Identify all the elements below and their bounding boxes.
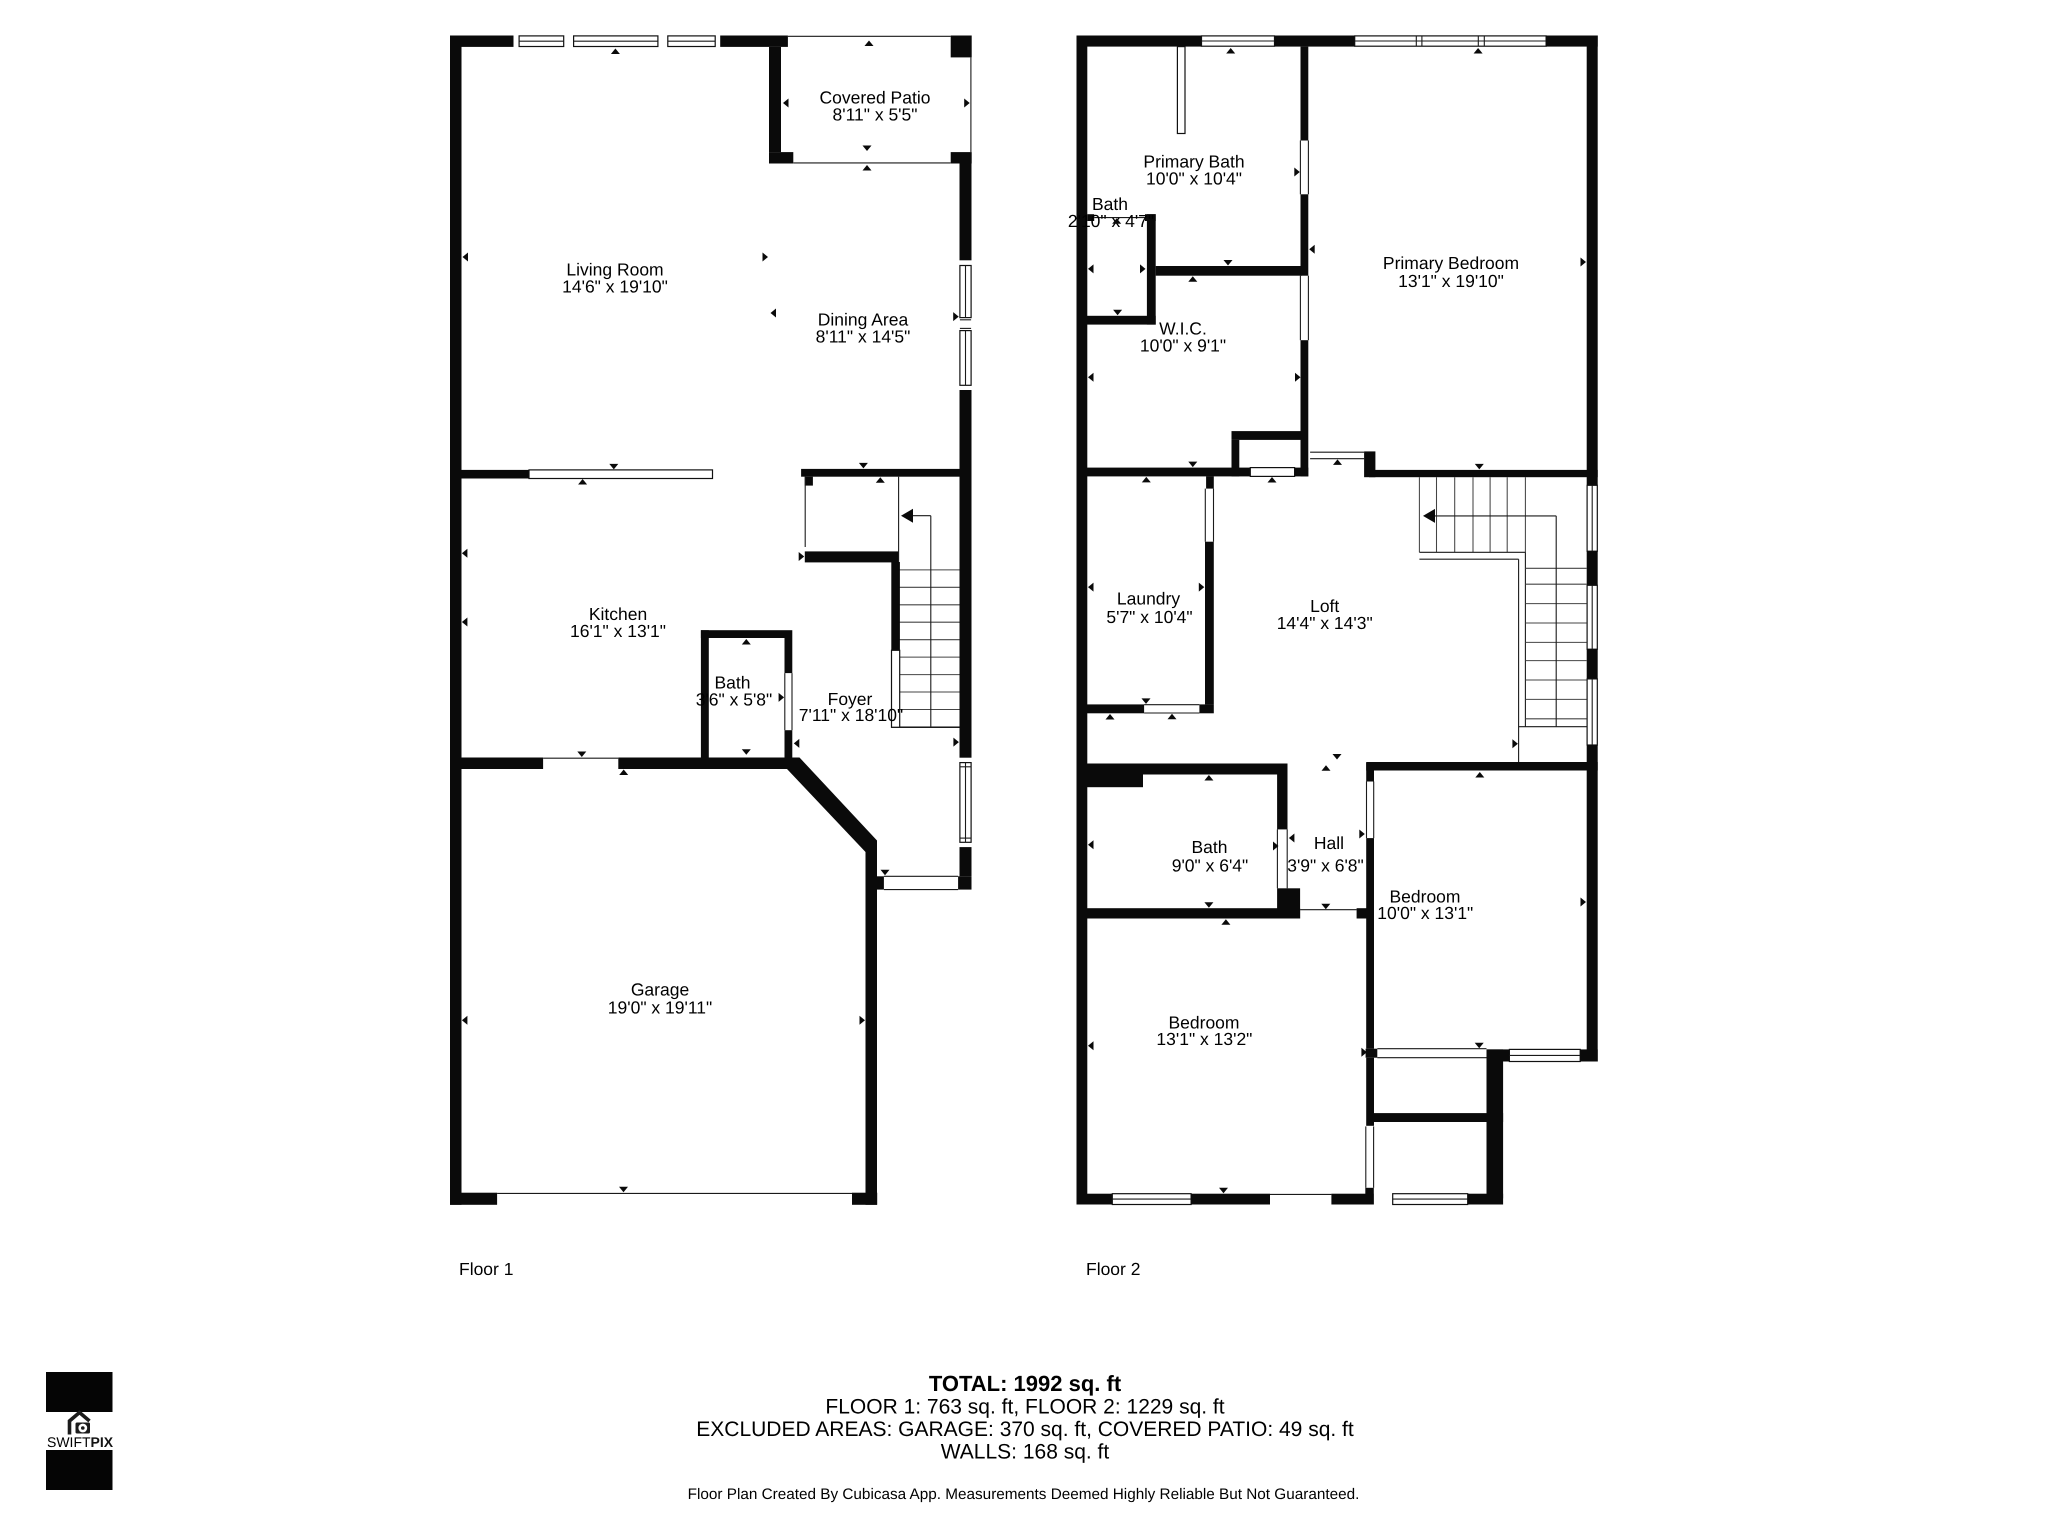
- svg-text:8'11" x 14'5": 8'11" x 14'5": [816, 327, 911, 347]
- svg-text:Primary Bedroom: Primary Bedroom: [1383, 253, 1519, 273]
- svg-text:5'7" x 10'4": 5'7" x 10'4": [1106, 607, 1192, 627]
- svg-text:10'0" x 13'1": 10'0" x 13'1": [1377, 903, 1473, 923]
- svg-text:EXCLUDED AREAS: GARAGE: 370 sq: EXCLUDED AREAS: GARAGE: 370 sq. ft, COVE…: [696, 1418, 1354, 1441]
- svg-text:3'9" x 6'8": 3'9" x 6'8": [1287, 856, 1364, 876]
- svg-text:Floor 2: Floor 2: [1086, 1259, 1140, 1279]
- svg-text:7'11" x 18'10": 7'11" x 18'10": [799, 705, 903, 725]
- svg-text:WALLS: 168 sq. ft: WALLS: 168 sq. ft: [941, 1441, 1110, 1464]
- svg-text:Bath: Bath: [1192, 837, 1228, 857]
- svg-text:13'1" x 19'10": 13'1" x 19'10": [1398, 271, 1504, 291]
- svg-text:19'0" x 19'11": 19'0" x 19'11": [608, 998, 712, 1018]
- svg-text:10'0" x 9'1": 10'0" x 9'1": [1140, 336, 1226, 356]
- svg-text:16'1" x 13'1": 16'1" x 13'1": [570, 621, 666, 641]
- svg-text:FLOOR 1: 763 sq. ft, FLOOR 2:: FLOOR 1: 763 sq. ft, FLOOR 2: 1229 sq. f…: [825, 1396, 1224, 1419]
- svg-text:TOTAL: 1992 sq. ft: TOTAL: 1992 sq. ft: [929, 1371, 1122, 1396]
- svg-text:14'4" x 14'3": 14'4" x 14'3": [1277, 613, 1373, 633]
- svg-text:Floor Plan Created By Cubicasa: Floor Plan Created By Cubicasa App. Meas…: [688, 1486, 1360, 1503]
- svg-text:SWIFTPIX: SWIFTPIX: [47, 1434, 114, 1450]
- svg-text:2'10" x 4'7": 2'10" x 4'7": [1068, 211, 1154, 231]
- svg-text:Laundry: Laundry: [1117, 589, 1180, 609]
- svg-text:8'11" x 5'5": 8'11" x 5'5": [833, 105, 918, 125]
- svg-text:13'1" x 13'2": 13'1" x 13'2": [1156, 1029, 1252, 1049]
- svg-text:Floor 1: Floor 1: [459, 1259, 513, 1279]
- svg-text:Garage: Garage: [631, 980, 689, 1000]
- svg-text:Hall: Hall: [1314, 833, 1344, 853]
- svg-text:3'6" x 5'8": 3'6" x 5'8": [696, 690, 773, 710]
- svg-text:14'6" x 19'10": 14'6" x 19'10": [562, 277, 668, 297]
- svg-text:9'0" x 6'4": 9'0" x 6'4": [1172, 856, 1249, 876]
- svg-text:10'0" x 10'4": 10'0" x 10'4": [1146, 169, 1242, 189]
